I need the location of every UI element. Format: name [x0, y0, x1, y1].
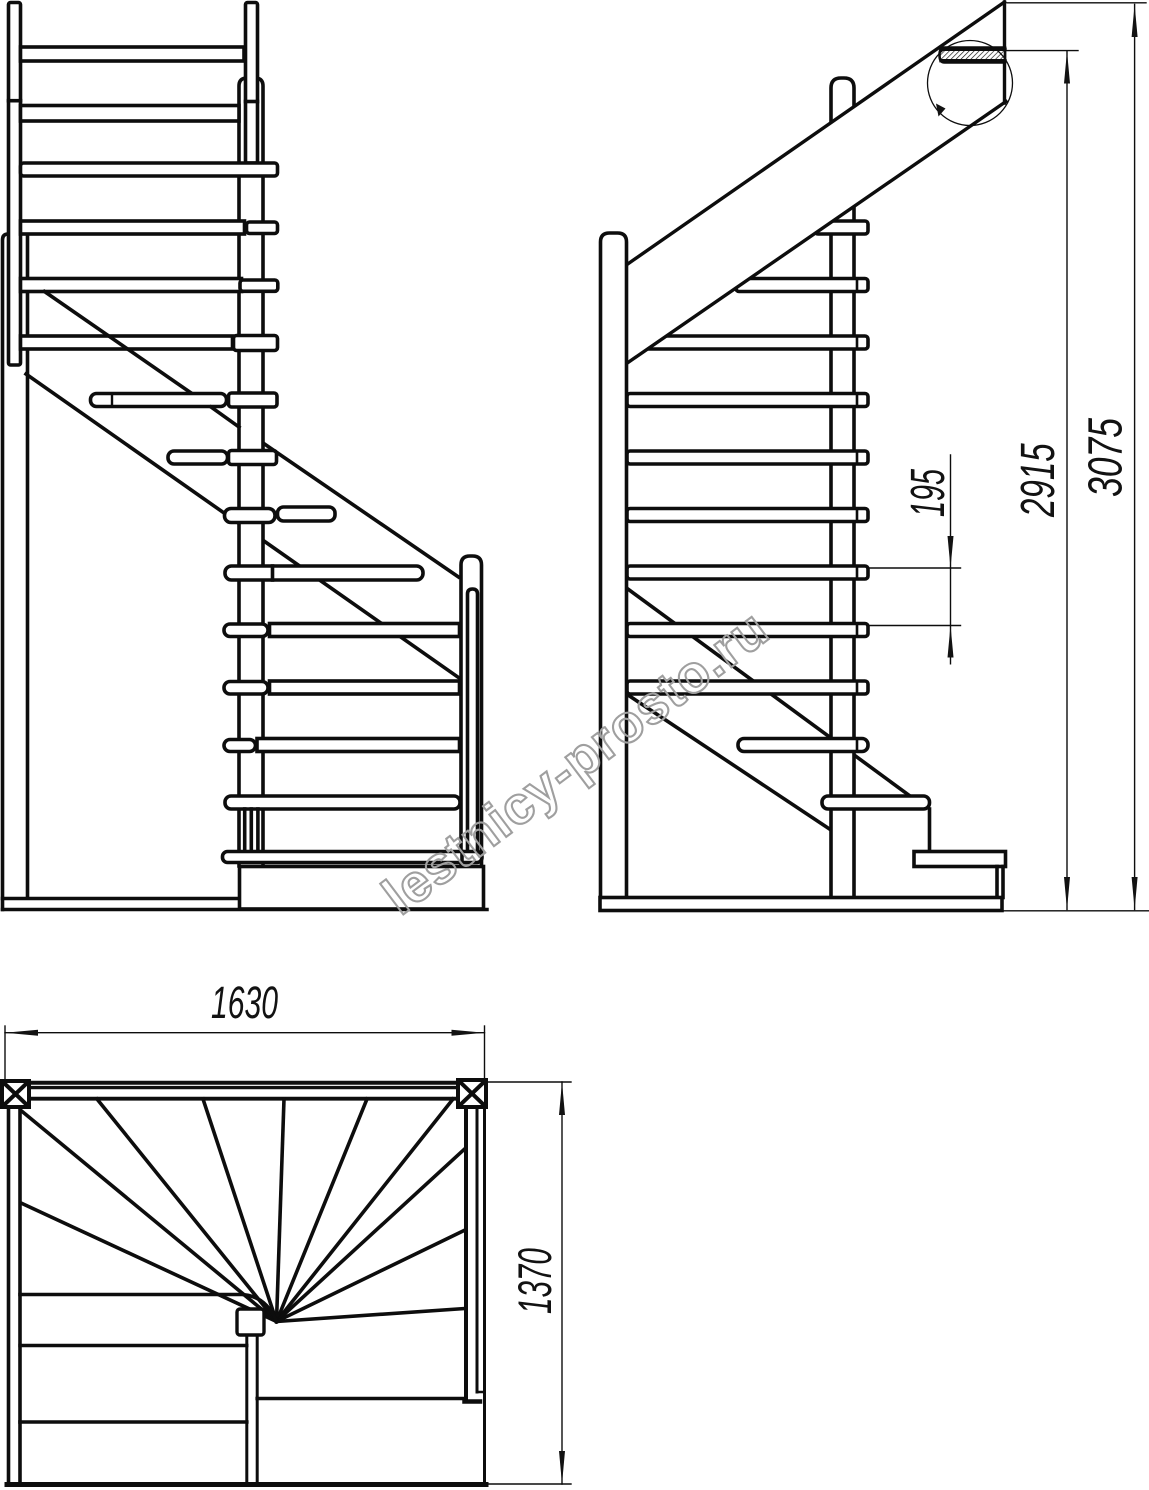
svg-text:1630: 1630: [211, 978, 278, 1029]
svg-text:1370: 1370: [509, 1248, 562, 1314]
svg-text:195: 195: [902, 468, 955, 517]
svg-text:2915: 2915: [1011, 442, 1065, 517]
svg-text:3075: 3075: [1078, 418, 1131, 497]
